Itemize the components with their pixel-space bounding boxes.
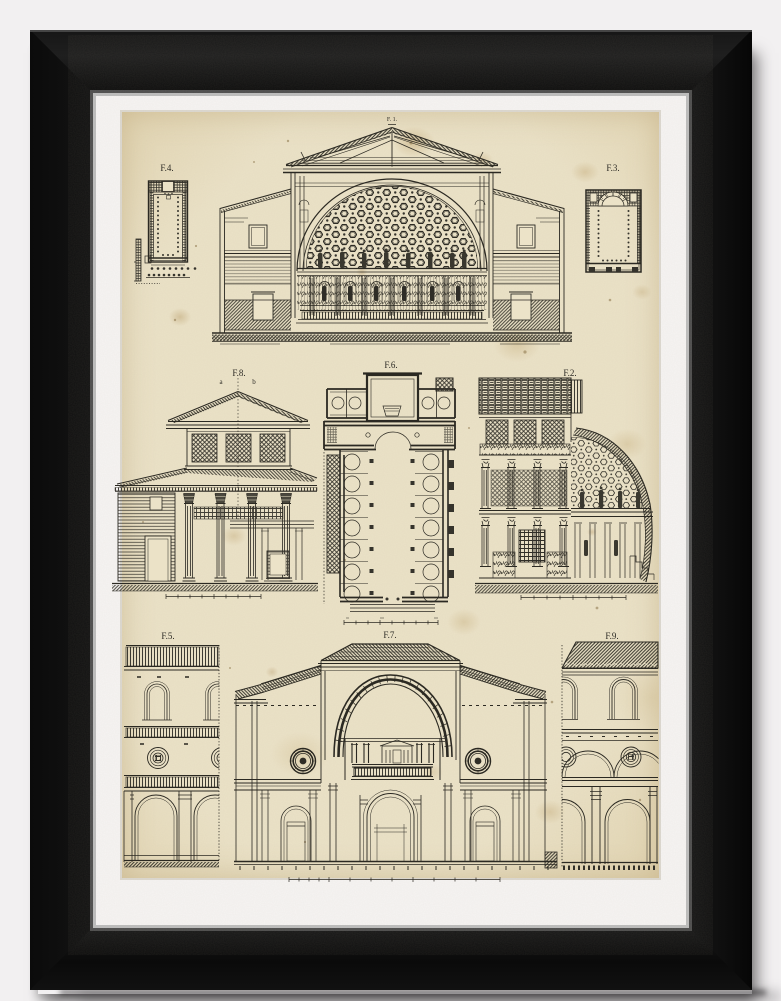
svg-text:F. 1.: F. 1.	[387, 117, 398, 123]
svg-text:F.9.: F.9.	[605, 631, 618, 641]
svg-text:F.7.: F.7.	[383, 630, 396, 640]
svg-text:F.8.: F.8.	[232, 368, 245, 378]
svg-text:F.2.: F.2.	[563, 368, 576, 378]
svg-text:F.5.: F.5.	[161, 631, 174, 641]
svg-text:b: b	[252, 378, 256, 386]
svg-text:F.3.: F.3.	[606, 163, 619, 173]
svg-text:F.6.: F.6.	[384, 360, 397, 370]
svg-text:F.4.: F.4.	[160, 163, 173, 173]
